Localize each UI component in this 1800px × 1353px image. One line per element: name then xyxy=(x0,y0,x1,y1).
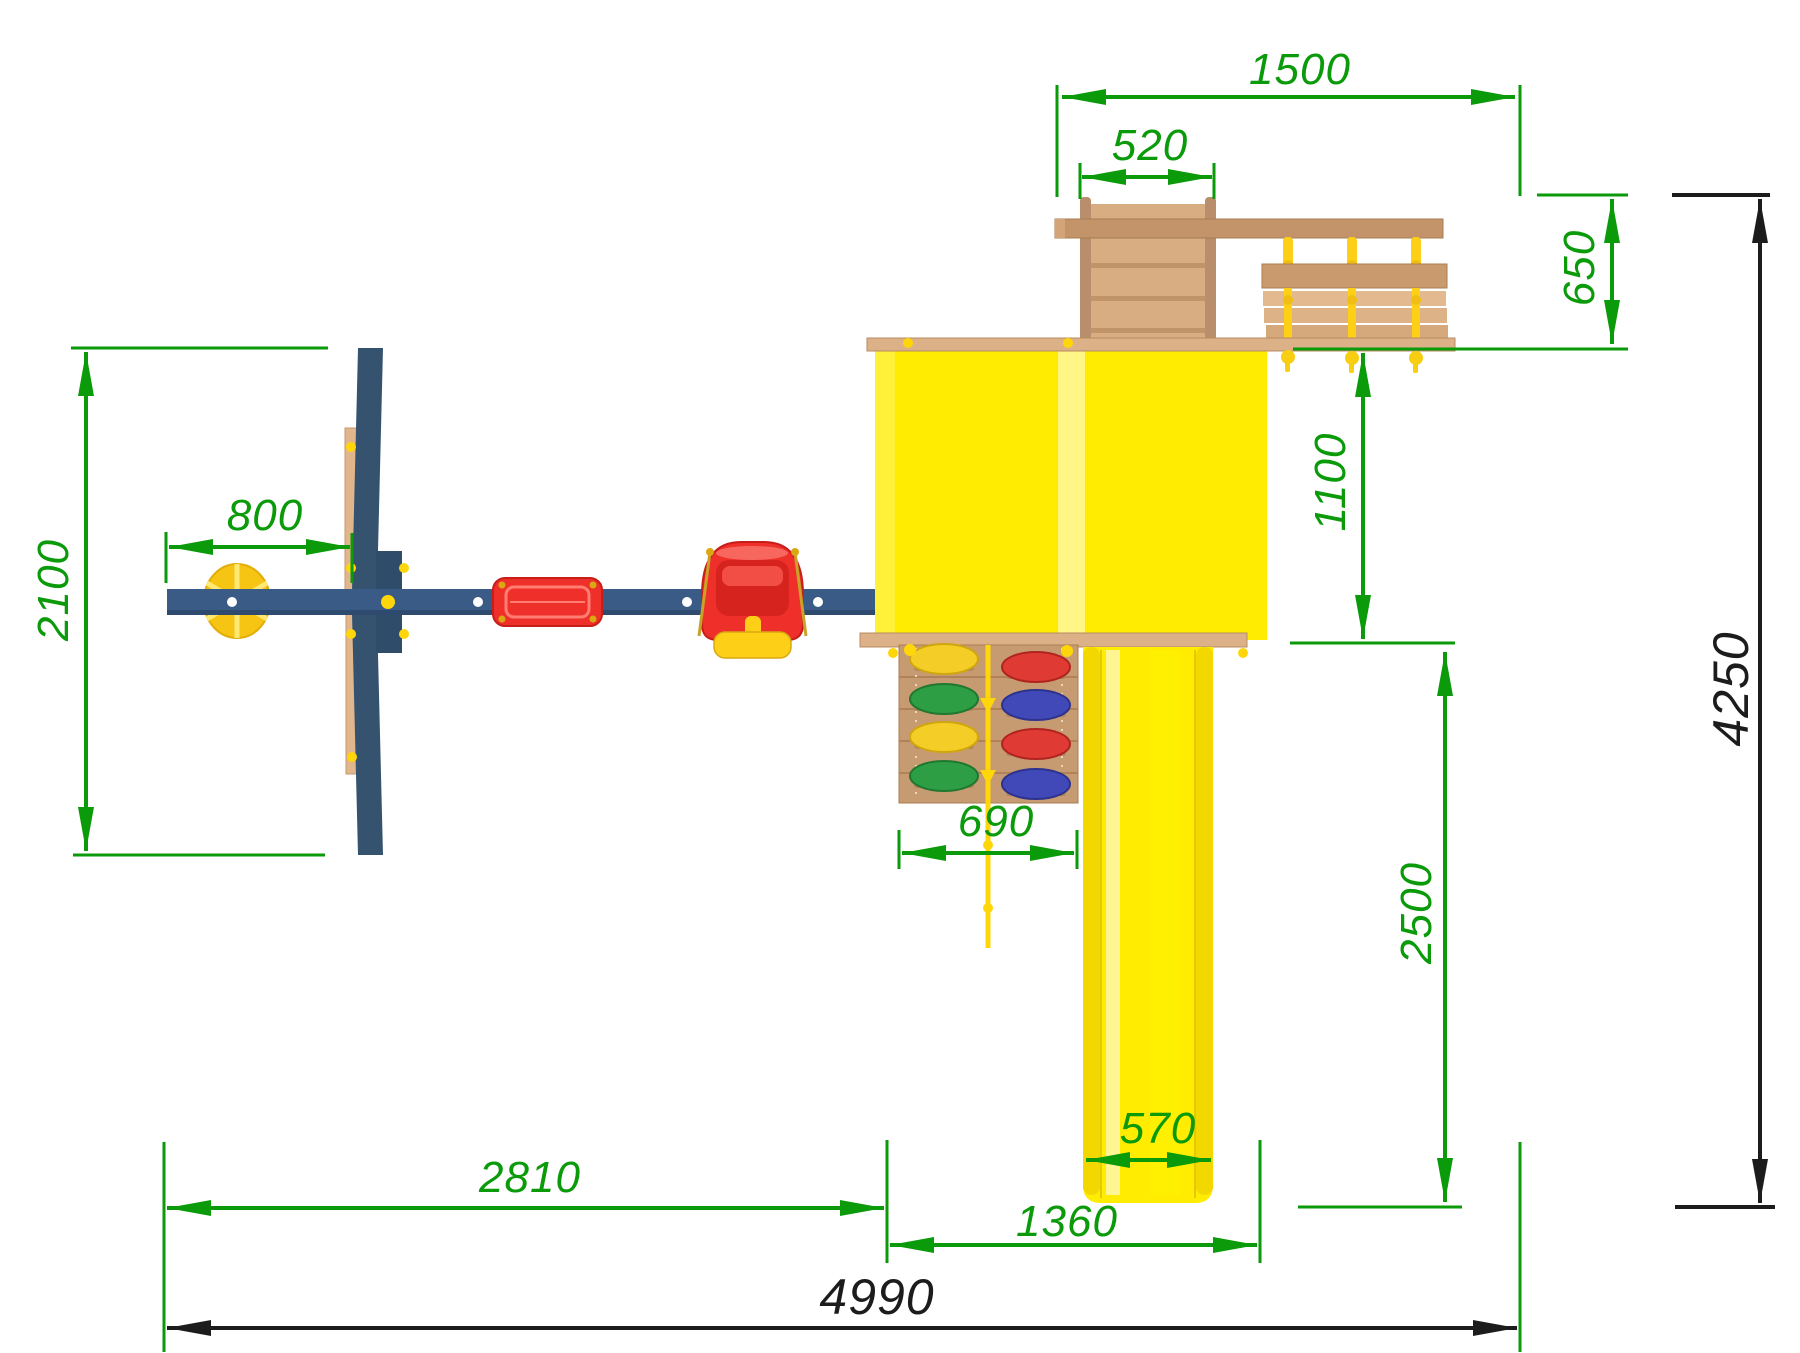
dim-label-1360: 1360 xyxy=(1016,1200,1118,1244)
dim-label-2810: 2810 xyxy=(479,1156,581,1200)
dim-label-1500: 1500 xyxy=(1249,48,1351,92)
rim-knob xyxy=(1238,648,1248,658)
dim-label-690: 690 xyxy=(958,800,1034,844)
wall-knob xyxy=(1061,645,1073,657)
dim-label-2100: 2100 xyxy=(32,539,76,641)
flat-swing-seat xyxy=(493,578,602,626)
playground-plan-drawing: 1500 520 650 1100 2500 4250 2100 800 690… xyxy=(0,0,1800,1353)
monkey-beam xyxy=(1055,219,1443,238)
frame-junction-upper xyxy=(376,551,402,591)
dim-label-650: 650 xyxy=(1558,230,1602,306)
dim-label-4990: 4990 xyxy=(819,1272,934,1322)
tower-platform xyxy=(860,348,1267,658)
platform-edge-highlight xyxy=(875,348,895,640)
slide-highlight xyxy=(1106,650,1120,1195)
dim-label-2500: 2500 xyxy=(1395,862,1439,964)
slide-rail-left xyxy=(1083,647,1100,1195)
dim-label-4250: 4250 xyxy=(1706,631,1756,746)
frame-junction-lower xyxy=(376,613,402,653)
platform-ridge-stripe xyxy=(1058,348,1085,640)
slide-rail-right xyxy=(1196,647,1213,1195)
dim-label-570: 570 xyxy=(1120,1107,1196,1151)
bridge-rope-knots xyxy=(1281,350,1423,373)
monkey-beam-endcap xyxy=(1055,219,1065,238)
dim-label-520: 520 xyxy=(1112,124,1188,168)
rim-knob xyxy=(888,648,898,658)
wall-knob xyxy=(904,644,916,656)
swing-frame xyxy=(167,348,880,855)
toddler-swing-seat xyxy=(699,542,806,658)
dim-label-800: 800 xyxy=(227,494,303,538)
dim-label-1100: 1100 xyxy=(1309,433,1353,532)
climbing-wall xyxy=(899,644,1078,948)
plan-view-svg xyxy=(0,0,1800,1353)
